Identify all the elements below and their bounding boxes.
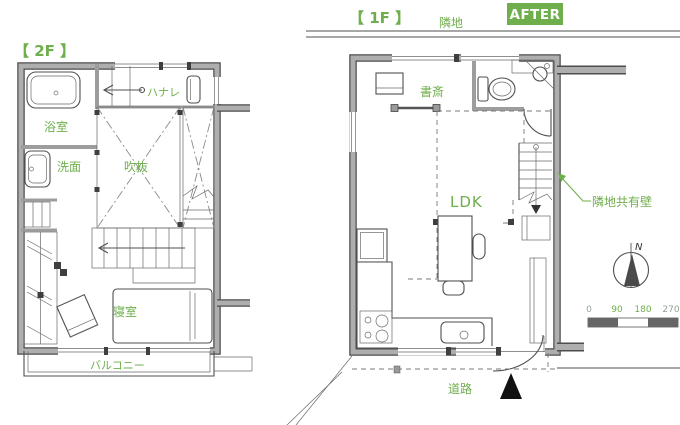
- under-stair-cabinet: [522, 216, 550, 240]
- floor-plan-diagram: 【 2F 】: [0, 0, 680, 425]
- entrance-marker-triangle: [500, 373, 522, 399]
- scale-tick-270: 270: [662, 305, 679, 315]
- bench: [530, 258, 546, 343]
- windows-1f: [350, 54, 520, 153]
- dining-table: [438, 216, 485, 295]
- floor-1f-title: 【 1F 】: [349, 9, 410, 27]
- stairs-2f: [92, 228, 195, 283]
- closet: [24, 232, 67, 344]
- floor-plan-svg: 【 2F 】: [0, 0, 680, 425]
- void-area: 吹抜: [95, 107, 183, 228]
- floor-plan-1f: 【 1F 】 隣地 AFTER: [287, 3, 680, 425]
- scale-bar: 0 90 180 270: [586, 305, 680, 327]
- floor-2f-title: 【 2F 】: [14, 42, 75, 60]
- stairwell-2f: [183, 107, 214, 228]
- road: 道路: [287, 356, 680, 425]
- walls-1f: [353, 58, 626, 352]
- compass-needle: [624, 254, 640, 286]
- label-void: 吹抜: [124, 160, 148, 174]
- label-hanare: ハナレ: [147, 86, 180, 99]
- floor-plan-2f: 【 2F 】: [14, 42, 252, 376]
- study-desk: [376, 73, 403, 94]
- label-adjacent-land: 隣地: [439, 15, 463, 30]
- shared-wall-annotation: 隣地共有壁: [558, 173, 652, 209]
- label-bedroom: 寝室: [113, 304, 137, 319]
- scale-tick-0: 0: [586, 305, 592, 315]
- toilet: [478, 77, 515, 101]
- shower-room: [24, 202, 50, 227]
- label-balcony: バルコニー: [90, 359, 145, 372]
- label-study: 書斎: [420, 84, 444, 99]
- compass: N: [614, 242, 649, 288]
- hanare-chair: [187, 76, 200, 103]
- label-ldk: LDK: [450, 193, 483, 211]
- after-badge-label: AFTER: [510, 7, 561, 23]
- bathtub: [27, 72, 80, 108]
- after-badge: AFTER: [507, 3, 563, 25]
- label-shared-wall: 隣地共有壁: [592, 194, 652, 209]
- stairs-1f: [519, 143, 552, 240]
- corner-sink: [512, 60, 554, 89]
- scale-tick-180: 180: [634, 305, 651, 315]
- beam: [391, 105, 440, 112]
- boundary-lines: [306, 31, 680, 37]
- label-washroom: 洗面: [57, 160, 81, 174]
- toilet-room: [472, 60, 554, 136]
- washbasin: [25, 151, 50, 187]
- label-road: 道路: [448, 381, 472, 396]
- hanare-area: ハナレ: [104, 66, 200, 106]
- desk-2f: [57, 295, 98, 337]
- scale-tick-90: 90: [611, 305, 623, 315]
- label-bathroom: 浴室: [44, 119, 68, 134]
- compass-north-label: N: [635, 242, 643, 253]
- stairs-up-arrow-2f: [104, 85, 145, 95]
